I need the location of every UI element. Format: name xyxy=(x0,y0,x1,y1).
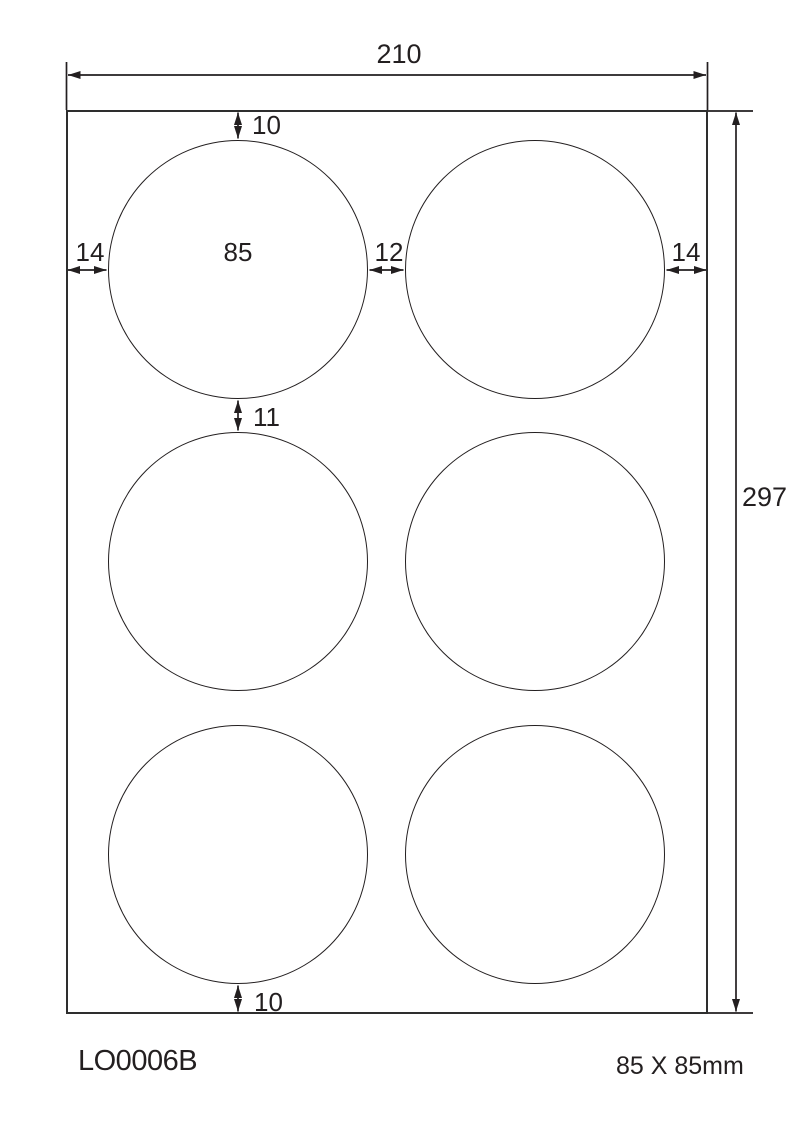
label-circle-r3c1 xyxy=(108,725,368,984)
label-circle-r2c2 xyxy=(405,432,665,691)
label-size-text: 85 X 85mm xyxy=(616,1054,744,1079)
product-code: LO0006B xyxy=(78,1047,197,1076)
label-circle-r3c2 xyxy=(405,725,665,984)
dim-label-sheet-width: 210 xyxy=(376,41,421,68)
label-circle-r1c2 xyxy=(405,140,665,399)
diagram-canvas: 210 297 10 14 85 12 14 11 10 LO0006B 85 … xyxy=(0,0,796,1124)
dim-label-margin-bottom: 10 xyxy=(254,989,283,1015)
label-circle-r1c1 xyxy=(108,140,368,399)
dim-label-margin-top: 10 xyxy=(252,112,281,138)
dim-label-margin-right: 14 xyxy=(672,239,701,265)
label-circle-r2c1 xyxy=(108,432,368,691)
dim-label-sheet-height: 297 xyxy=(742,484,787,511)
dim-label-diameter: 85 xyxy=(224,239,253,265)
dim-label-gap-horizontal: 12 xyxy=(375,239,404,265)
dim-label-gap-vertical: 11 xyxy=(253,404,280,430)
dim-label-margin-left: 14 xyxy=(76,239,105,265)
